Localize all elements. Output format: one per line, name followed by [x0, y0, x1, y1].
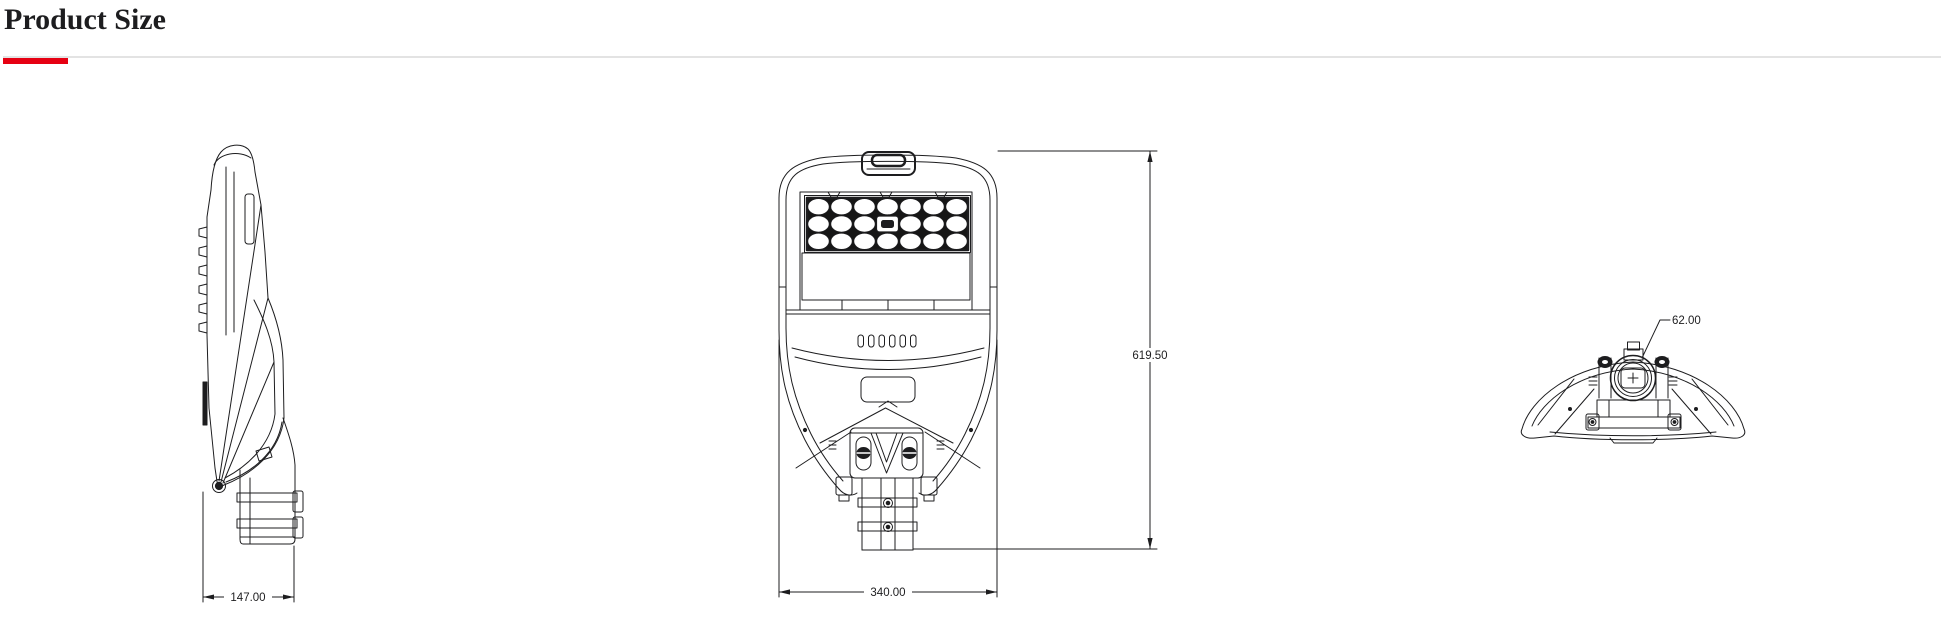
- section-title: Product Size: [4, 3, 166, 36]
- side-seal-strip: [203, 382, 207, 425]
- vent-slots: [858, 335, 916, 347]
- side-view-drawing: 147.00: [190, 110, 320, 610]
- label-plate: [861, 377, 915, 402]
- rear-view-drawing: 62.00: [1510, 305, 1760, 450]
- side-width-dimension: 147.00: [203, 492, 294, 604]
- pole-spigot: [858, 478, 917, 550]
- product-size-section: Product Size: [0, 0, 1941, 628]
- heatsink-fins: [199, 227, 207, 333]
- side-pole-mount: [237, 418, 303, 544]
- led-panel: [800, 192, 972, 310]
- spigot-diameter-dim-label: 62.00: [1672, 315, 1701, 327]
- front-view-body: [779, 152, 997, 550]
- divider-accent-bar: [3, 58, 68, 64]
- spigot-diameter-dimension: 62.00: [1642, 315, 1701, 358]
- hinge-bolt: [215, 482, 222, 489]
- rear-view-body: [1521, 342, 1744, 443]
- section-divider: [3, 56, 1941, 58]
- front-view-drawing: 619.50 340.00: [620, 110, 1180, 620]
- rear-bracket: [1586, 400, 1681, 430]
- front-width-dim-label: 340.00: [870, 587, 905, 599]
- side-width-dim-label: 147.00: [230, 592, 265, 604]
- mounting-bracket: [829, 428, 944, 501]
- side-view-body: [199, 145, 303, 544]
- front-height-dim-label: 619.50: [1132, 350, 1167, 362]
